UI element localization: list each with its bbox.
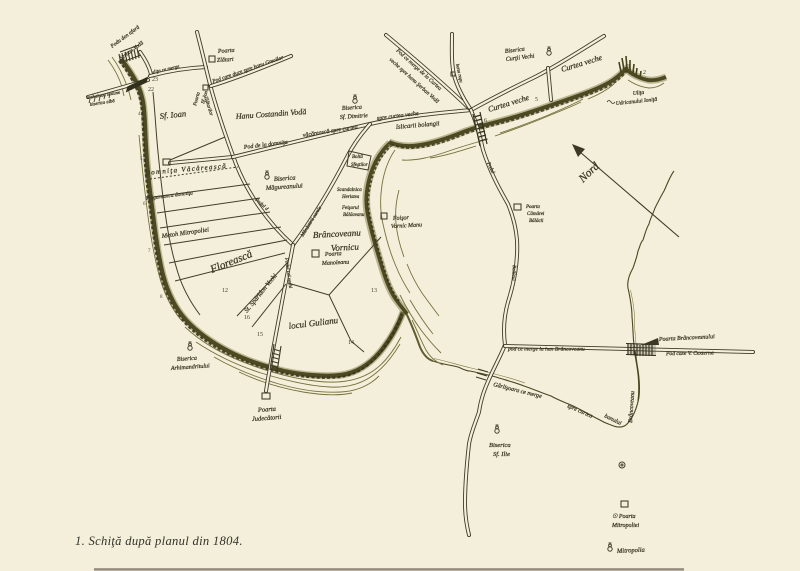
svg-text:23: 23 xyxy=(152,77,158,83)
svg-text:15: 15 xyxy=(257,332,263,338)
svg-text:14: 14 xyxy=(348,340,354,346)
svg-text:Uliţa: Uliţa xyxy=(633,90,645,97)
svg-text:Sf. Ilie: Sf. Ilie xyxy=(493,451,510,458)
svg-text:13: 13 xyxy=(371,288,377,294)
svg-text:Poarta: Poarta xyxy=(324,251,342,258)
svg-text:Bălăceanu: Bălăceanu xyxy=(343,213,365,218)
svg-text:Foişor: Foişor xyxy=(392,215,410,222)
svg-text:Mitropoliei: Mitropoliei xyxy=(611,523,639,529)
svg-text:5: 5 xyxy=(535,97,538,103)
svg-text:Poarta: Poarta xyxy=(217,48,235,55)
svg-text:Boltă: Boltă xyxy=(352,155,363,160)
svg-text:16: 16 xyxy=(244,315,250,321)
svg-text:Scandalnica: Scandalnica xyxy=(337,188,362,193)
svg-text:2: 2 xyxy=(643,70,646,76)
svg-text:Feişorul: Feişorul xyxy=(341,206,360,211)
svg-text:1. Schiţă după planul din 1804: 1. Schiţă după planul din 1804. xyxy=(75,534,243,548)
svg-text:Zlătari: Zlătari xyxy=(217,57,234,64)
svg-text:Biserica: Biserica xyxy=(489,442,511,449)
svg-text:Sfeştilor: Sfeştilor xyxy=(351,163,368,168)
svg-text:Pod case V. Cexterna: Pod case V. Cexterna xyxy=(665,350,714,357)
svg-text:Poarta: Poarta xyxy=(257,406,277,414)
svg-text:3: 3 xyxy=(627,64,630,70)
svg-text:12: 12 xyxy=(222,288,228,294)
svg-text:Poarta: Poarta xyxy=(525,205,540,210)
svg-text:Heristea: Heristea xyxy=(341,195,360,200)
svg-text:Cămărei: Cămărei xyxy=(527,212,545,217)
svg-text:22: 22 xyxy=(148,87,154,93)
svg-text:Bălăcii: Bălăcii xyxy=(529,219,544,224)
svg-text:6: 6 xyxy=(484,118,487,124)
svg-text:☉ Poarta: ☉ Poarta xyxy=(612,513,636,520)
svg-text:pod ce merge la han Brâncovean: pod ce merge la han Brâncoveanu xyxy=(507,347,585,353)
